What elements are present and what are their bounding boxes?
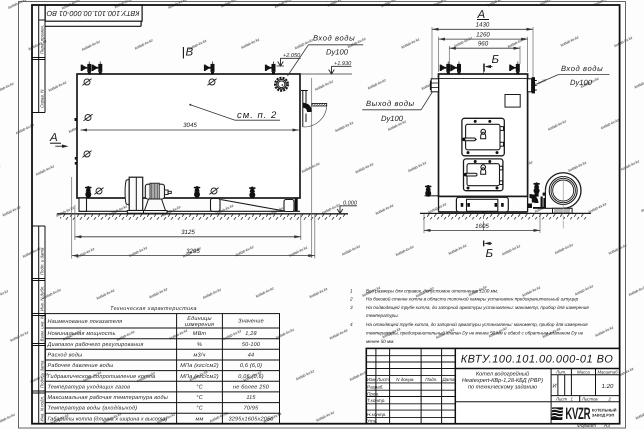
svg-text:КОТЕЛЬНЫЙ: КОТЕЛЬНЫЙ	[592, 408, 617, 413]
svg-text:температуры, предохранительный: температуры, предохранительный клапан Dу…	[366, 330, 584, 335]
svg-text:Heatexpert-КВр-1,28-КБД (РВР): Heatexpert-КВр-1,28-КБД (РВР)	[462, 377, 543, 384]
svg-text:1: 1	[350, 288, 353, 293]
svg-text:Котел водогрейный: Котел водогрейный	[476, 371, 529, 378]
svg-text:менее 50 мм.: менее 50 мм.	[366, 339, 395, 344]
svg-text:Б: Б	[486, 248, 494, 260]
svg-text:+2.050: +2.050	[283, 53, 301, 59]
svg-text:°С: °С	[196, 395, 203, 401]
svg-text:3295: 3295	[186, 248, 200, 255]
svg-text:1430: 1430	[476, 22, 490, 29]
svg-text:Разраб.: Разраб.	[367, 385, 384, 390]
svg-text:Рабочее давление воды: Рабочее давление воды	[48, 362, 114, 369]
svg-text:Инв. N подл.: Инв. N подл.	[40, 396, 45, 422]
svg-text:50-100: 50-100	[242, 342, 261, 348]
svg-text:%: %	[197, 342, 202, 348]
svg-text:Вход воды: Вход воды	[313, 34, 355, 43]
svg-text:0.000: 0.000	[343, 201, 358, 207]
svg-text:Все размеры для справок, допус: Все размеры для справок, допустимое откл…	[366, 288, 498, 293]
svg-text:Dy100: Dy100	[326, 48, 349, 57]
svg-text:Подп. и дата: Подп. и дата	[40, 360, 45, 388]
svg-text:Максимальная рабочая температу: Максимальная рабочая температура воды	[48, 394, 168, 401]
svg-text:3125: 3125	[181, 229, 195, 236]
svg-text:2: 2	[349, 297, 353, 302]
svg-text:В: В	[186, 47, 194, 59]
svg-text:Б: Б	[492, 54, 500, 66]
svg-text:КВТУ.100.101.00.000-01 ВО: КВТУ.100.101.00.000-01 ВО	[461, 354, 614, 366]
svg-text:Инв. N дубл.: Инв. N дубл.	[40, 286, 45, 311]
svg-text:Дата: Дата	[441, 377, 455, 382]
svg-text:+1.930: +1.930	[334, 61, 352, 67]
svg-text:Выход воды: Выход воды	[366, 99, 415, 108]
svg-text:Вход воды: Вход воды	[561, 64, 603, 73]
svg-text:44: 44	[248, 352, 255, 358]
svg-text:1260: 1260	[476, 31, 490, 38]
svg-text:Лист: Лист	[555, 396, 567, 401]
svg-text:Масса: Масса	[577, 369, 590, 374]
svg-text:Единицы: Единицы	[187, 316, 211, 322]
svg-text:На отводящей трубе котла, до з: На отводящей трубе котла, до запорной ар…	[366, 322, 588, 327]
svg-text:Подп. и дата: Подп. и дата	[40, 247, 45, 275]
svg-text:Dy100: Dy100	[381, 114, 404, 123]
svg-text:На подводящей трубе котла, д: На подводящей трубе котла, до запорной а…	[366, 305, 589, 310]
svg-text:Изм: Изм	[367, 377, 376, 382]
svg-text:МПа (кгс/см2): МПа (кгс/см2)	[180, 363, 219, 369]
svg-text:Номинальная мощность: Номинальная мощность	[48, 331, 116, 337]
svg-text:Расход воды: Расход воды	[48, 352, 83, 358]
svg-text:На боковой стенке котла в обла: На боковой стенке котла в области топочн…	[366, 297, 579, 302]
svg-text:м3/ч: м3/ч	[193, 352, 205, 358]
svg-text:Гидравлическое сопротивление к: Гидравлическое сопротивление котла	[48, 374, 156, 380]
svg-text:Справ. N: Справ. N	[40, 90, 45, 108]
svg-text:А3: А3	[603, 423, 610, 429]
svg-text:не более 250: не более 250	[233, 383, 270, 390]
svg-text:КВТУ.100.101.00.000-01 ВО: КВТУ.100.101.00.000-01 ВО	[46, 9, 139, 18]
svg-text:Перв. примен.: Перв. примен.	[40, 25, 45, 54]
svg-text:3295х1605х2050: 3295х1605х2050	[228, 416, 274, 422]
svg-text:ЗАВОД РЭП: ЗАВОД РЭП	[592, 413, 615, 417]
svg-text:МПа (кгс/см2): МПа (кгс/см2)	[180, 374, 219, 380]
svg-text:Формат: Формат	[577, 423, 596, 429]
svg-text:4: 4	[350, 322, 353, 327]
svg-text:Лит.: Лит.	[555, 369, 566, 374]
svg-text:0,06 (0,6): 0,06 (0,6)	[238, 374, 264, 380]
svg-text:по техническому заданию: по техническому заданию	[468, 384, 538, 391]
svg-text:Пров.: Пров.	[367, 392, 379, 397]
svg-text:960: 960	[478, 41, 489, 48]
svg-text:Н.контр.: Н.контр.	[367, 412, 386, 417]
svg-text:А: А	[49, 132, 58, 144]
svg-text:1,28: 1,28	[245, 331, 257, 337]
svg-text:Листов: Листов	[581, 396, 598, 401]
svg-text:Диапазон рабочего регулировани: Диапазон рабочего регулирования	[47, 341, 144, 348]
svg-text:Техническая характеристика: Техническая характеристика	[110, 306, 197, 312]
svg-text:мм: мм	[196, 416, 204, 422]
svg-text:°С: °С	[196, 406, 203, 412]
svg-text:70/95: 70/95	[244, 406, 260, 412]
svg-text:°С: °С	[196, 384, 203, 390]
svg-text:Температура воды (вход/выход): Температура воды (вход/выход)	[48, 406, 138, 412]
svg-text:KVZR: KVZR	[565, 405, 590, 423]
svg-text:1:20: 1:20	[602, 383, 614, 390]
svg-text:Dy100: Dy100	[570, 78, 593, 87]
svg-text:И: И	[552, 383, 556, 389]
svg-text:0,6 (6,0): 0,6 (6,0)	[240, 363, 262, 369]
svg-text:Т.контр.: Т.контр.	[367, 398, 386, 403]
svg-text:N докум.: N докум.	[396, 377, 415, 382]
svg-text:см. п. 2: см. п. 2	[237, 110, 277, 121]
svg-text:Наименование показателя: Наименование показателя	[48, 319, 123, 325]
svg-text:3045: 3045	[183, 122, 197, 129]
svg-text:Температура уходящих газов: Температура уходящих газов	[48, 384, 131, 390]
svg-text:МВт: МВт	[193, 331, 207, 337]
svg-text:температуры.: температуры.	[366, 313, 399, 318]
svg-text:1605: 1605	[475, 223, 489, 230]
svg-text:115: 115	[246, 395, 256, 401]
svg-text:измерения: измерения	[185, 322, 214, 328]
svg-text:Утв.: Утв.	[367, 419, 377, 424]
svg-text:Лист: Лист	[376, 377, 389, 382]
svg-text:Масштаб: Масштаб	[597, 369, 618, 374]
svg-text:Значение: Значение	[238, 319, 264, 325]
svg-text:Подп.: Подп.	[425, 377, 437, 382]
svg-text:Габариты котла (длинна х ширин: Габариты котла (длинна х ширина х высота…	[48, 415, 168, 422]
svg-text:Взам. инв. N: Взам. инв. N	[40, 315, 45, 341]
svg-text:3: 3	[350, 305, 353, 310]
